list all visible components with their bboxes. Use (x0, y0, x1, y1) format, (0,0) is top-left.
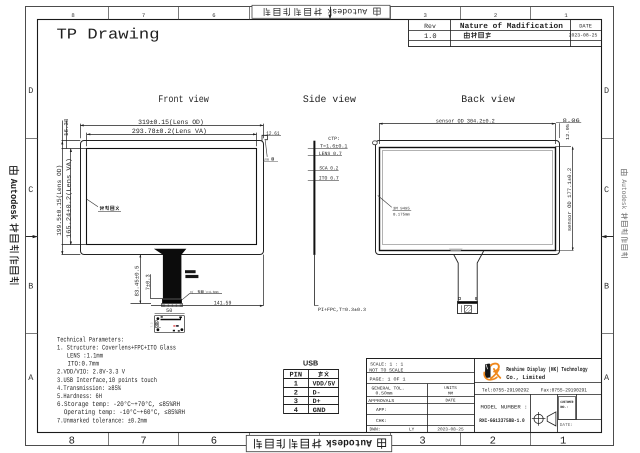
svg-text:7: 7 (140, 436, 146, 448)
svg-text:0.50mm: 0.50mm (376, 392, 393, 397)
svg-text:B: B (604, 282, 609, 292)
svg-text:8: 8 (71, 12, 74, 19)
svg-text:RXC-GG133758B-1.0: RXC-GG133758B-1.0 (479, 418, 525, 424)
svg-text:DATE: DATE (579, 23, 592, 29)
svg-text:PIN: PIN (289, 372, 302, 380)
svg-text:3: 3 (294, 398, 298, 406)
svg-text:8.06: 8.06 (563, 118, 580, 124)
svg-text:83.45±0.5: 83.45±0.5 (134, 266, 141, 297)
svg-text:D: D (28, 86, 33, 96)
svg-text:APPROVALS: APPROVALS (368, 399, 394, 404)
svg-text:NO.:: NO.: (560, 405, 568, 410)
svg-text:3: 3 (419, 436, 425, 448)
svg-text:ITO:0.7mm: ITO:0.7mm (57, 361, 99, 369)
svg-text:Fax:0755-29190291: Fax:0755-29190291 (541, 388, 587, 394)
svg-text:CHK:: CHK: (376, 418, 387, 424)
svg-text:Autodesk: Autodesk (326, 436, 372, 448)
svg-text:141.59: 141.59 (214, 299, 232, 306)
svg-text:UNITS: UNITS (444, 386, 457, 391)
svg-text:D: D (604, 86, 609, 96)
svg-text:DATE: DATE (445, 398, 456, 403)
svg-text:DATE:: DATE: (560, 423, 573, 428)
svg-text:A: A (28, 373, 34, 383)
svg-text:D-: D- (313, 389, 321, 396)
svg-text:12.95: 12.95 (565, 124, 571, 140)
svg-text:sensor OD 304.2±0.2: sensor OD 304.2±0.2 (436, 119, 495, 125)
svg-text:APP:: APP: (376, 407, 387, 413)
svg-text:2: 2 (294, 389, 298, 397)
svg-text:GENERAL TOL.: GENERAL TOL. (372, 386, 405, 391)
svg-text:1. Structure: Coverlens+FPC+IT: 1. Structure: Coverlens+FPC+ITO Glass (57, 344, 176, 352)
svg-text:16.38: 16.38 (63, 118, 70, 136)
svg-text:2023-08-25: 2023-08-25 (437, 428, 464, 433)
svg-text:USB: USB (264, 159, 270, 162)
svg-text:Front view: Front view (158, 94, 209, 106)
svg-text:Technical Parameters:: Technical Parameters: (57, 337, 124, 345)
svg-text:3M 9495: 3M 9495 (393, 207, 410, 212)
svg-text:TP Drawing: TP Drawing (57, 26, 160, 43)
svg-text:Rev: Rev (424, 23, 436, 30)
svg-text:PAGE: 1 OF 1: PAGE: 1 OF 1 (370, 377, 406, 383)
svg-text:0.175mm: 0.175mm (393, 212, 410, 217)
svg-text:7: 7 (142, 12, 145, 19)
svg-text:1: 1 (294, 381, 298, 389)
svg-text:C: C (604, 185, 609, 195)
svg-text:Co., Limited: Co., Limited (506, 374, 545, 381)
svg-text:8: 8 (69, 436, 75, 448)
svg-text:3.USB Interface,10 points touc: 3.USB Interface,10 points touch (57, 377, 157, 385)
svg-text:PI+FPC,T=0.3±0.3: PI+FPC,T=0.3±0.3 (318, 307, 366, 313)
svg-text:2023-08-25: 2023-08-25 (569, 33, 598, 39)
svg-text:LY: LY (409, 427, 415, 432)
svg-text:4: 4 (294, 407, 298, 415)
svg-text:7±0.3: 7±0.3 (144, 274, 151, 290)
svg-text:Reshine Display (HK) Technolog: Reshine Display (HK) Technology (506, 366, 588, 373)
svg-text:DWN:: DWN: (370, 427, 381, 433)
svg-text:B: B (28, 282, 33, 292)
svg-text:199.5±0.15(Lens OD): 199.5±0.15(Lens OD) (56, 165, 63, 236)
svg-text:293.78±0.2(Lens VA): 293.78±0.2(Lens VA) (132, 128, 207, 135)
svg-text:SCALE: 1 : 1: SCALE: 1 : 1 (370, 362, 403, 368)
svg-text:USB: USB (303, 359, 318, 368)
svg-text:GND: GND (313, 407, 326, 414)
svg-text:4.Transmission: ≥85%: 4.Transmission: ≥85% (57, 385, 122, 393)
svg-text:Side view: Side view (303, 94, 356, 106)
svg-text:6: 6 (212, 12, 215, 19)
svg-text:CUSTOMER: CUSTOMER (560, 400, 574, 405)
svg-text:2.VDD/VIO: 2.8V-3.3 V: 2.VDD/VIO: 2.8V-3.3 V (57, 369, 126, 377)
svg-text:Autodesk: Autodesk (327, 6, 367, 15)
svg-text:Autodesk: Autodesk (619, 179, 628, 209)
svg-text:6.Storage temp: -20°C~+70°C, ≤: 6.Storage temp: -20°C~+70°C, ≤85%RH (57, 401, 180, 409)
svg-text:5.Hardness: 6H: 5.Hardness: 6H (57, 393, 102, 401)
svg-text:Nature of Madification: Nature of Madification (460, 22, 563, 31)
svg-text:Tel:0755-29190292: Tel:0755-29190292 (482, 388, 529, 394)
svg-text:7.Unmarked tolerance: ±0.2mm: 7.Unmarked tolerance: ±0.2mm (57, 417, 147, 425)
svg-text:CTP:: CTP: (328, 136, 340, 142)
svg-text:D+: D+ (313, 398, 321, 405)
svg-text:VDD/5V: VDD/5V (313, 381, 336, 388)
svg-text:2: 2 (494, 12, 497, 19)
svg-text:7.2: 7.2 (150, 322, 153, 327)
svg-text:±(: ±( (190, 290, 194, 294)
svg-text:Autodesk: Autodesk (8, 179, 19, 220)
svg-text:MM: MM (448, 391, 454, 396)
svg-text:6: 6 (211, 436, 217, 448)
svg-text:1: 1 (560, 436, 566, 448)
svg-text:165.24±0.2(Lens VA): 165.24±0.2(Lens VA) (65, 158, 72, 238)
svg-text:2: 2 (490, 436, 496, 448)
svg-text:NOT TO SCALE: NOT TO SCALE (369, 367, 403, 373)
svg-text:sensor OD 177.1±0.2: sensor OD 177.1±0.2 (567, 168, 573, 232)
svg-text:LENS :1.1mm: LENS :1.1mm (57, 353, 103, 361)
svg-text:)=4.3mm: )=4.3mm (205, 290, 218, 294)
svg-text:C: C (28, 185, 33, 195)
svg-text:LENS 0.7: LENS 0.7 (319, 151, 342, 157)
svg-text:319±0.15(Lens OD): 319±0.15(Lens OD) (138, 119, 204, 126)
svg-text:MODEL NUMBER :: MODEL NUMBER : (481, 405, 528, 411)
svg-text:Operating temp: -10°C~+60°C, ≤: Operating temp: -10°C~+60°C, ≤85%RH (57, 409, 185, 417)
svg-text:A: A (604, 373, 610, 383)
svg-text:3: 3 (424, 12, 427, 19)
svg-text:Back view: Back view (461, 94, 515, 106)
svg-text:1.0: 1.0 (424, 33, 437, 41)
